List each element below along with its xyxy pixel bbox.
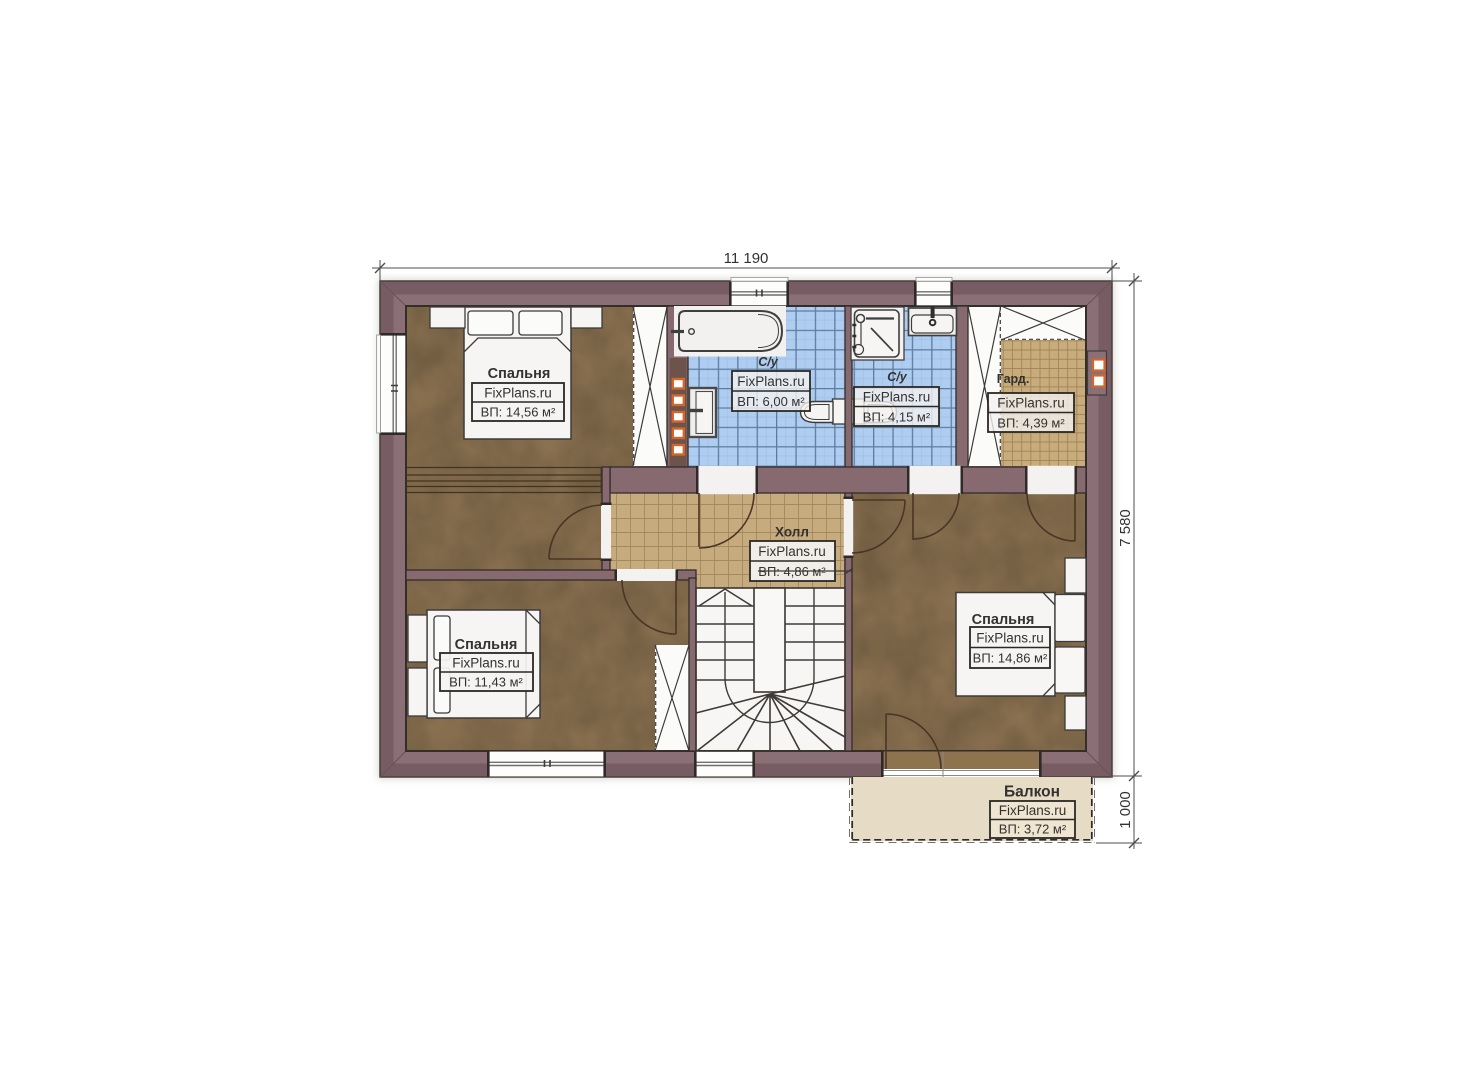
svg-text:FixPlans.ru: FixPlans.ru — [999, 803, 1067, 818]
svg-text:FixPlans.ru: FixPlans.ru — [737, 374, 805, 389]
svg-text:7 580: 7 580 — [1117, 509, 1134, 547]
svg-text:С/у: С/у — [887, 370, 908, 384]
svg-text:ВП: 6,00 м²: ВП: 6,00 м² — [737, 394, 805, 409]
svg-text:Балкон: Балкон — [1004, 784, 1060, 801]
svg-text:11 190: 11 190 — [724, 250, 769, 267]
svg-text:С/у: С/у — [758, 355, 779, 369]
svg-text:Спальня: Спальня — [455, 637, 518, 653]
svg-text:Гард.: Гард. — [997, 372, 1030, 386]
svg-text:ВП: 4,15 м²: ВП: 4,15 м² — [863, 410, 931, 425]
svg-text:ВП: 3,72 м²: ВП: 3,72 м² — [999, 822, 1067, 837]
svg-text:Холл: Холл — [775, 525, 809, 540]
svg-text:1 000: 1 000 — [1117, 791, 1134, 829]
svg-text:FixPlans.ru: FixPlans.ru — [976, 631, 1044, 646]
svg-text:ВП: 14,86 м²: ВП: 14,86 м² — [973, 651, 1048, 666]
svg-text:Спальня: Спальня — [488, 366, 551, 382]
svg-text:FixPlans.ru: FixPlans.ru — [452, 656, 520, 671]
svg-text:Спальня: Спальня — [972, 612, 1035, 628]
svg-text:ВП: 11,43 м²: ВП: 11,43 м² — [449, 675, 523, 690]
svg-text:ВП: 4,39 м²: ВП: 4,39 м² — [997, 416, 1065, 431]
svg-text:FixPlans.ru: FixPlans.ru — [758, 544, 826, 559]
svg-text:FixPlans.ru: FixPlans.ru — [863, 390, 931, 405]
svg-text:ВП: 14,56 м²: ВП: 14,56 м² — [481, 405, 556, 420]
svg-text:FixPlans.ru: FixPlans.ru — [997, 396, 1065, 411]
svg-text:FixPlans.ru: FixPlans.ru — [484, 386, 552, 401]
